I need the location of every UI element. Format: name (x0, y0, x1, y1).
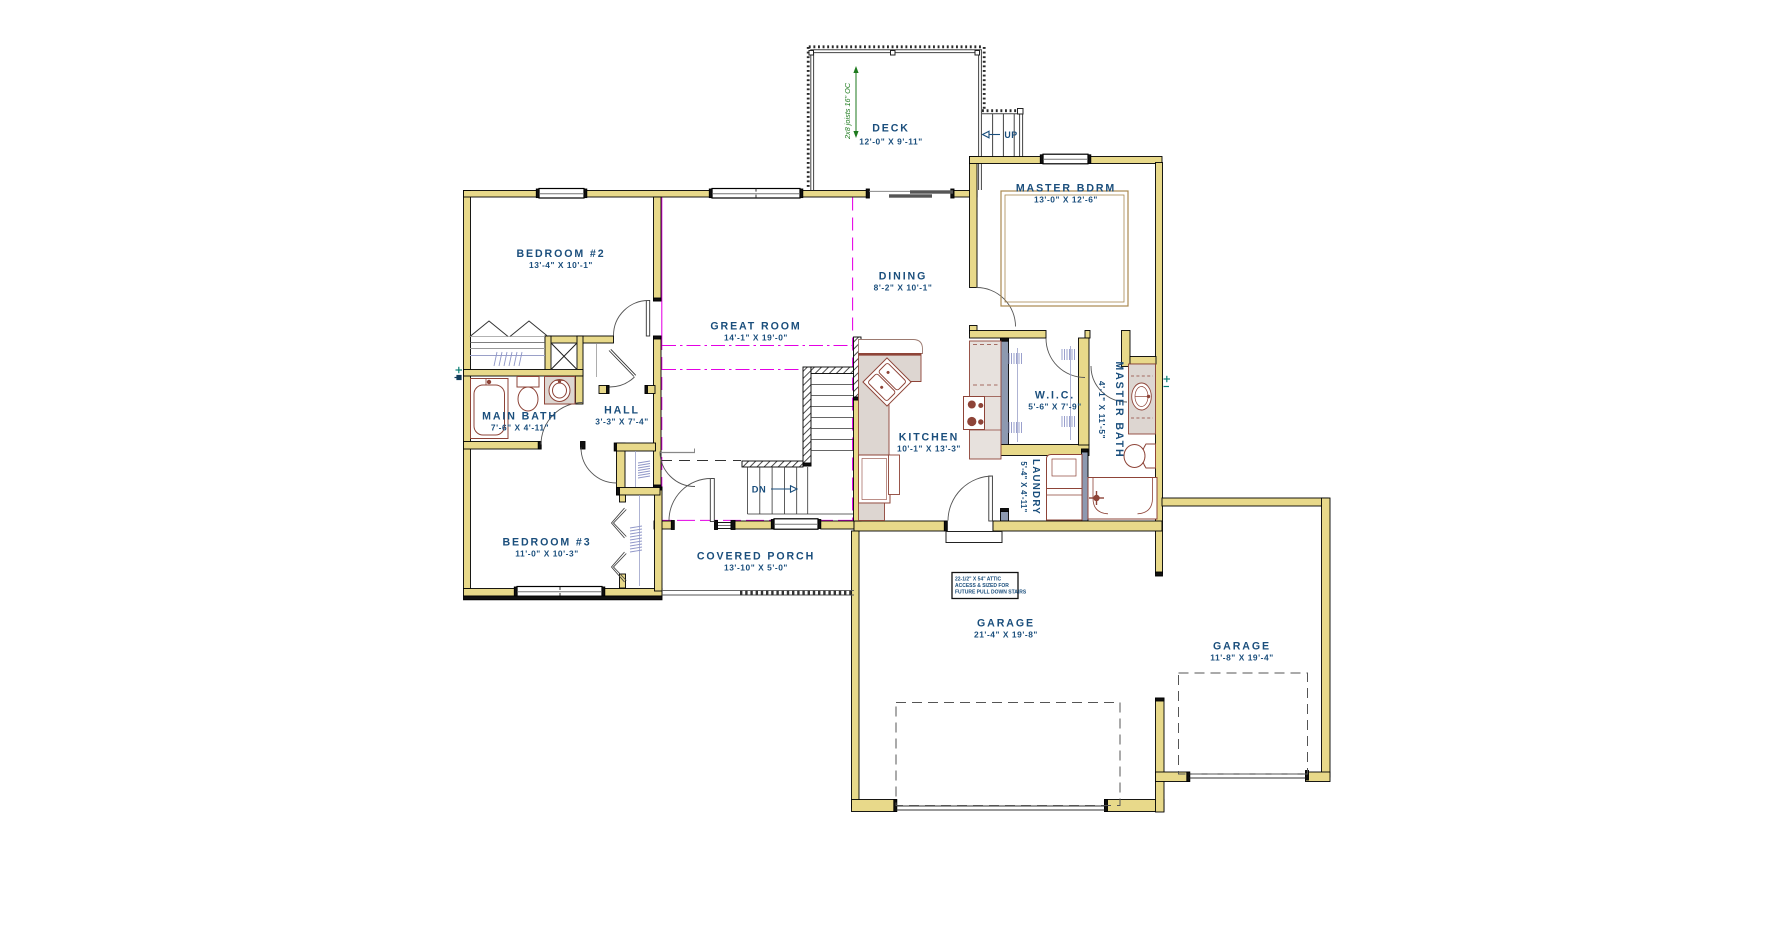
svg-text:4'-1" X 11'-5": 4'-1" X 11'-5" (1097, 381, 1107, 439)
svg-text:MAIN BATH: MAIN BATH (482, 411, 558, 423)
svg-text:21'-4" X 19'-8": 21'-4" X 19'-8" (974, 630, 1038, 640)
svg-text:LAUNDRY: LAUNDRY (1030, 459, 1041, 515)
svg-text:W.I.C.: W.I.C. (1035, 390, 1075, 402)
svg-text:12'-0" X 9'-11": 12'-0" X 9'-11" (859, 137, 922, 147)
svg-text:DINING: DINING (879, 271, 927, 283)
svg-text:BEDROOM #2: BEDROOM #2 (516, 248, 605, 260)
svg-text:KITCHEN: KITCHEN (899, 432, 959, 444)
svg-text:11'-0" X 10'-3": 11'-0" X 10'-3" (515, 549, 578, 559)
svg-text:14'-1" X 19'-0": 14'-1" X 19'-0" (724, 333, 788, 343)
svg-text:DN: DN (752, 485, 767, 495)
svg-text:FUTURE PULL DOWN STAIRS: FUTURE PULL DOWN STAIRS (955, 590, 1027, 596)
svg-text:22-1/2" X 54" ATTIC: 22-1/2" X 54" ATTIC (955, 577, 1002, 583)
svg-text:13'-10" X 5'-0": 13'-10" X 5'-0" (724, 563, 788, 573)
svg-text:GARAGE: GARAGE (1213, 641, 1271, 653)
svg-text:11'-8" X 19'-4": 11'-8" X 19'-4" (1210, 653, 1273, 663)
svg-text:10'-1" X 13'-3": 10'-1" X 13'-3" (897, 444, 961, 454)
svg-text:ACCESS & SIZED FOR: ACCESS & SIZED FOR (955, 583, 1009, 589)
svg-text:COVERED PORCH: COVERED PORCH (697, 551, 815, 563)
svg-text:MASTER BDRM: MASTER BDRM (1016, 183, 1116, 195)
svg-text:DECK: DECK (872, 123, 910, 135)
svg-text:13'-0" X 12'-6": 13'-0" X 12'-6" (1034, 195, 1098, 205)
svg-text:2x8 joists 16" OC: 2x8 joists 16" OC (843, 82, 852, 140)
svg-text:BEDROOM #3: BEDROOM #3 (502, 537, 591, 549)
svg-text:13'-4" X 10'-1": 13'-4" X 10'-1" (529, 260, 593, 270)
svg-text:5'-4" X 4'-11": 5'-4" X 4'-11" (1019, 461, 1028, 512)
svg-text:HALL: HALL (604, 405, 640, 417)
svg-text:7'-6" X 4'-11": 7'-6" X 4'-11" (491, 423, 549, 433)
svg-text:UP: UP (1004, 130, 1017, 140)
svg-text:GREAT ROOM: GREAT ROOM (710, 321, 801, 333)
svg-text:3'-3" X 7'-4": 3'-3" X 7'-4" (595, 417, 649, 427)
svg-text:MASTER BATH: MASTER BATH (1113, 361, 1125, 458)
svg-text:5'-6" X 7'-9": 5'-6" X 7'-9" (1028, 402, 1082, 412)
svg-text:GARAGE: GARAGE (977, 618, 1035, 630)
svg-text:8'-2" X 10'-1": 8'-2" X 10'-1" (874, 283, 933, 293)
